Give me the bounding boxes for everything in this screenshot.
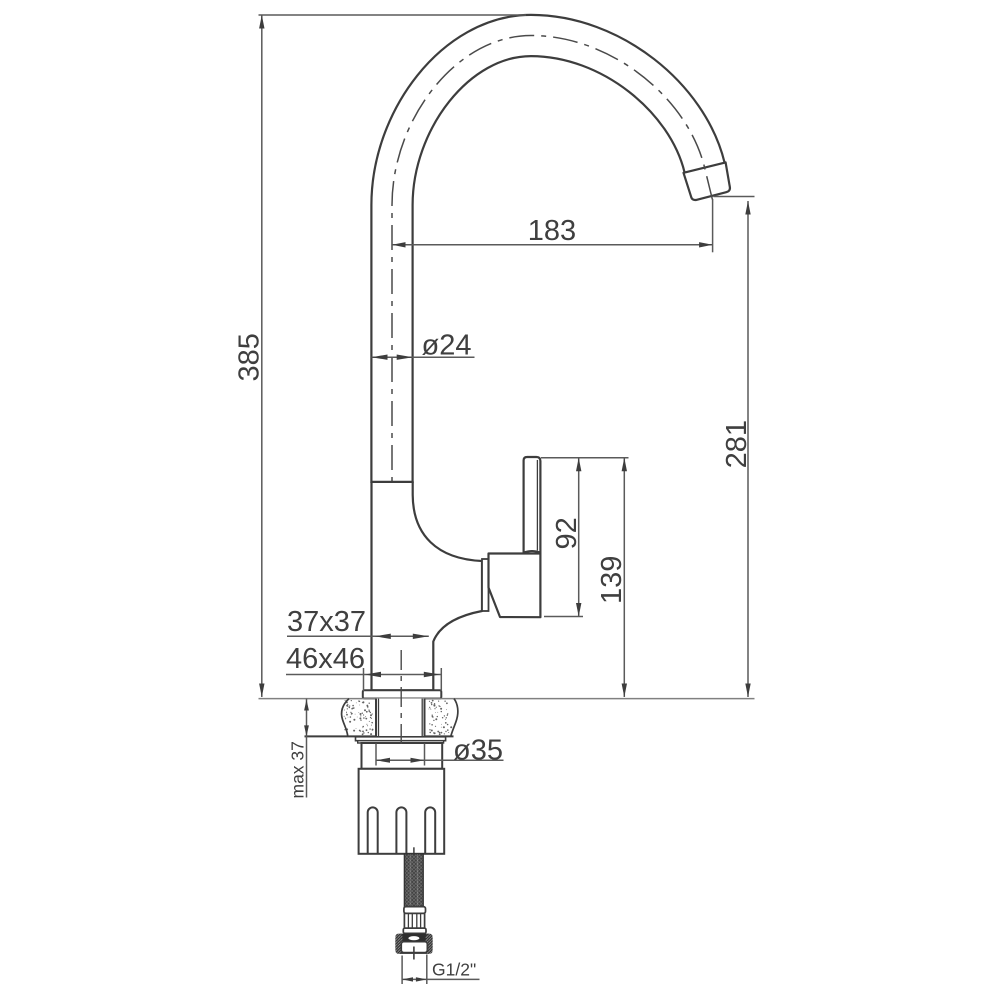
svg-text:183: 183 [528,215,576,247]
svg-text:46x46: 46x46 [286,643,365,675]
svg-text:139: 139 [596,556,628,604]
svg-text:max 37: max 37 [288,741,308,798]
svg-text:ø35: ø35 [453,735,503,767]
svg-text:G1/2": G1/2" [432,960,476,980]
svg-text:ø24: ø24 [422,330,472,362]
svg-text:281: 281 [721,420,753,468]
svg-text:92: 92 [551,517,583,549]
svg-text:385: 385 [234,333,266,381]
svg-text:37x37: 37x37 [287,606,366,638]
